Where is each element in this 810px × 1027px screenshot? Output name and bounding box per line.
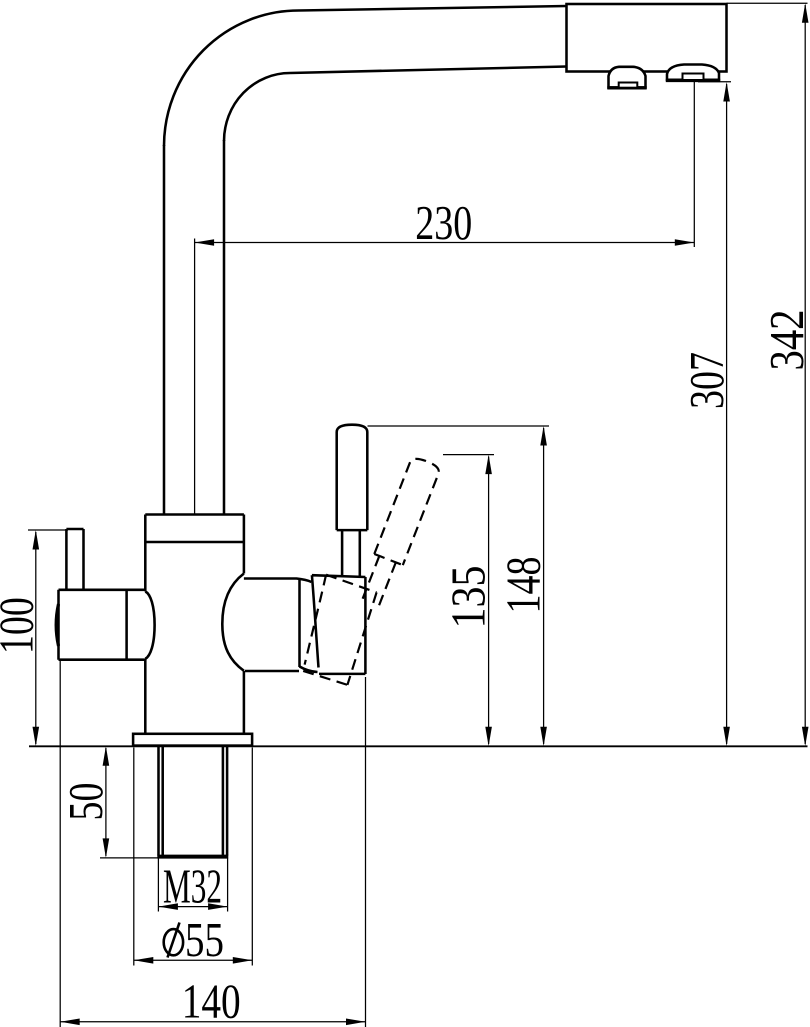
svg-text:230: 230 xyxy=(415,195,472,250)
svg-text:148: 148 xyxy=(496,557,551,614)
svg-text:M32: M32 xyxy=(163,859,222,914)
svg-text:50: 50 xyxy=(58,783,113,821)
svg-text:55: 55 xyxy=(185,912,224,967)
svg-text:307: 307 xyxy=(679,352,734,409)
svg-text:342: 342 xyxy=(759,310,810,371)
svg-text:140: 140 xyxy=(182,974,241,1027)
svg-text:100: 100 xyxy=(0,597,44,654)
svg-text:135: 135 xyxy=(441,566,496,629)
